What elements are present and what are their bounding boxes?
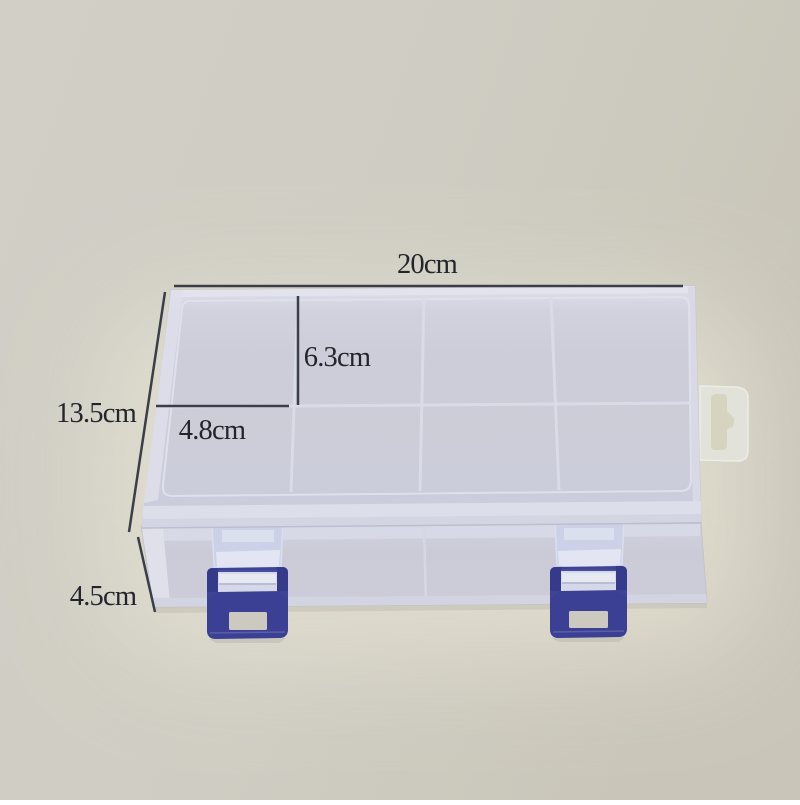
svg-text:4.5cm: 4.5cm: [70, 581, 137, 612]
svg-text:4.8cm: 4.8cm: [179, 415, 246, 446]
svg-text:20cm: 20cm: [397, 249, 458, 280]
svg-text:6.3cm: 6.3cm: [304, 342, 371, 373]
svg-text:13.5cm: 13.5cm: [56, 398, 137, 429]
